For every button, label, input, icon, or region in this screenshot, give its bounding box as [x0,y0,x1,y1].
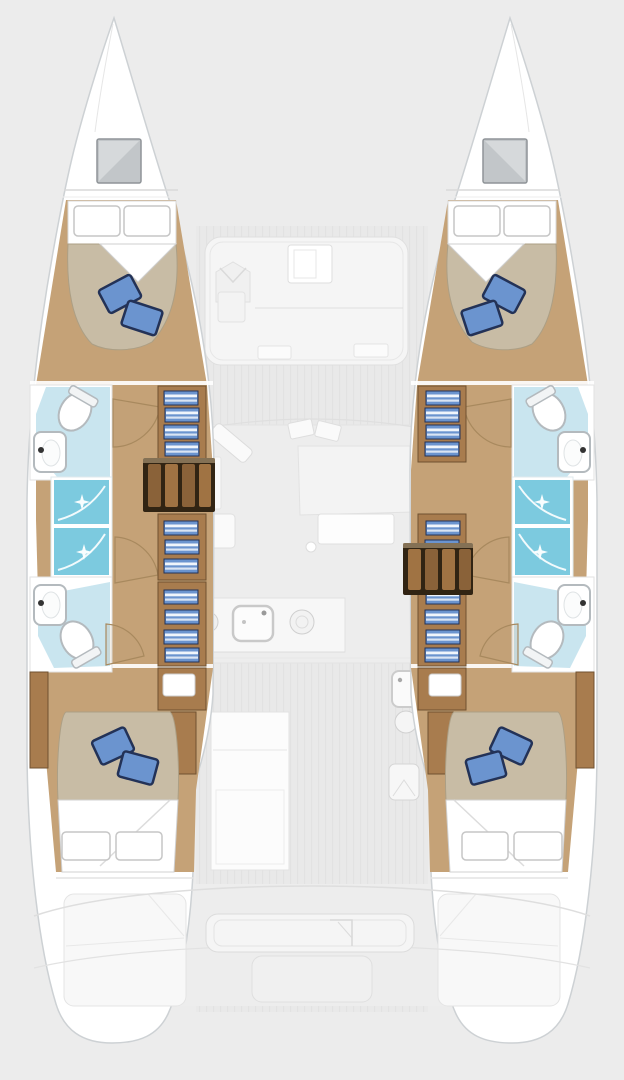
port-companionway-steps [143,458,215,512]
salon-stool [306,542,316,552]
step-tread [425,549,438,590]
washbasin-aft-faucet [38,600,44,606]
washbasin-forward-faucet [38,447,44,453]
shower-divider [54,524,109,528]
salon-table [318,514,394,544]
aft-cabin-side-wood-left [30,672,48,768]
catamaran-floor-plan [0,0,624,1080]
aft-berth-pillow-left [62,832,110,860]
forward-berth [68,201,178,350]
forward-cockpit [205,237,408,365]
steps-top-edge [403,543,473,548]
washbasin-forward-bowl [42,440,60,466]
wardrobe-column [158,386,206,710]
washbasin-aft-bowl [42,592,60,618]
swim-platform [252,956,372,1002]
galley-burner [290,610,314,634]
starboard-companionway-steps [403,543,473,595]
galley-island [211,712,289,870]
berth-pillow-right [124,206,170,236]
step-tread [165,464,178,507]
step-tread [442,549,455,590]
wardrobe-unit-4-item [163,674,195,696]
shower-block [51,477,112,578]
salon-sofa [298,446,414,515]
berth-pillow-left [74,206,120,236]
aft-berth-pillow-right [116,832,162,860]
forward-cockpit-seat [218,292,245,322]
forward-cockpit-locker-right [354,344,388,357]
forward-cockpit-table [288,245,332,283]
forward-cockpit-locker-left [258,346,291,359]
galley-sink [233,606,273,641]
galley-drain [242,620,246,624]
steps-top-edge [143,458,215,463]
step-tread [182,464,195,507]
service-basin-dot [398,678,402,682]
step-tread [148,464,161,507]
galley-faucet [262,611,267,616]
step-tread [459,549,471,590]
wall-fwd [30,381,213,385]
step-tread [408,549,421,590]
step-tread [199,464,211,507]
